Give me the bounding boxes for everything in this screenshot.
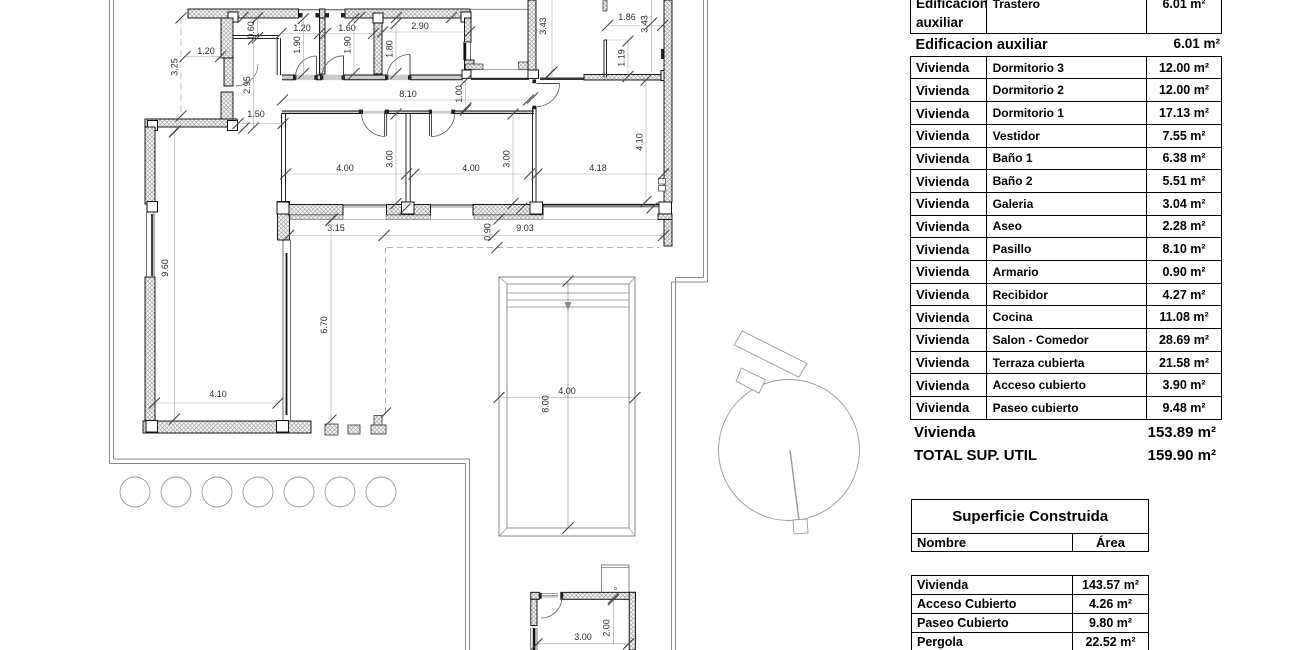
svg-text:0.90: 0.90: [483, 223, 493, 241]
svg-text:4.00: 4.00: [336, 163, 354, 173]
svg-text:3.00: 3.00: [385, 150, 395, 168]
svg-text:3.15: 3.15: [327, 223, 345, 233]
svg-text:3.43: 3.43: [640, 15, 650, 33]
svg-text:4.10: 4.10: [635, 133, 645, 151]
svg-text:9.60: 9.60: [160, 259, 170, 277]
svg-text:6.70: 6.70: [319, 316, 329, 334]
svg-text:1.00: 1.00: [454, 85, 464, 103]
svg-text:2.90: 2.90: [411, 21, 429, 31]
svg-text:1.20: 1.20: [293, 23, 311, 33]
svg-text:1.90: 1.90: [292, 36, 302, 54]
svg-text:3.00: 3.00: [502, 150, 512, 168]
svg-text:3.43: 3.43: [538, 17, 548, 35]
svg-text:9.03: 9.03: [516, 223, 534, 233]
svg-text:4.00: 4.00: [462, 163, 480, 173]
svg-text:4.00: 4.00: [558, 386, 576, 396]
svg-text:8.00: 8.00: [541, 395, 551, 413]
svg-text:0.60: 0.60: [246, 21, 256, 39]
svg-text:1.20: 1.20: [197, 46, 215, 56]
svg-text:1.90: 1.90: [343, 36, 353, 54]
svg-text:1.60: 1.60: [338, 23, 356, 33]
svg-text:2.00: 2.00: [602, 619, 612, 637]
svg-text:4.10: 4.10: [209, 389, 227, 399]
svg-text:1.19: 1.19: [617, 49, 627, 67]
svg-text:1.50: 1.50: [247, 109, 265, 119]
svg-text:8.10: 8.10: [399, 89, 417, 99]
svg-text:1.86: 1.86: [618, 12, 636, 22]
svg-text:4.18: 4.18: [589, 163, 607, 173]
svg-text:3.00: 3.00: [574, 632, 592, 642]
svg-text:2.95: 2.95: [242, 76, 252, 94]
svg-text:3.25: 3.25: [170, 58, 180, 76]
svg-text:1.80: 1.80: [385, 40, 395, 58]
